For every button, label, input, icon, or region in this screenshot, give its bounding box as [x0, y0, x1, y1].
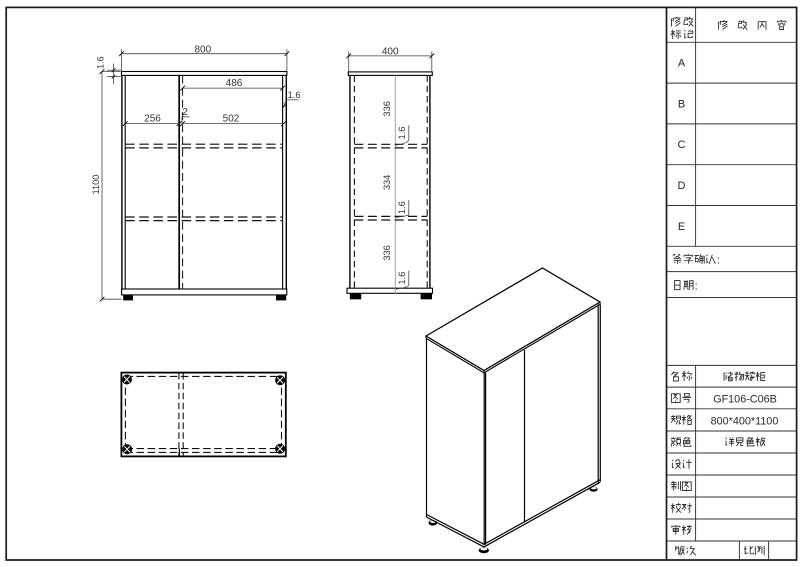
- svg-text:1.6: 1.6: [397, 201, 407, 214]
- svg-text:1.6: 1.6: [397, 127, 407, 140]
- svg-text:D: D: [678, 180, 686, 192]
- svg-text:800*400*1100: 800*400*1100: [711, 416, 779, 428]
- svg-text:E: E: [678, 221, 685, 233]
- svg-text:1100: 1100: [91, 175, 101, 195]
- svg-text::: :: [695, 281, 698, 293]
- svg-text::: :: [717, 255, 720, 267]
- svg-text:1.6: 1.6: [288, 90, 301, 100]
- svg-text:B: B: [678, 98, 685, 110]
- svg-text:800: 800: [194, 44, 211, 55]
- svg-text:A: A: [678, 58, 686, 70]
- svg-text:336: 336: [382, 245, 392, 261]
- svg-text:336: 336: [382, 101, 392, 117]
- svg-text:486: 486: [226, 78, 243, 89]
- svg-text:GF106-C06B: GF106-C06B: [713, 394, 777, 406]
- svg-text:C: C: [678, 139, 686, 151]
- svg-text:256: 256: [144, 113, 161, 124]
- svg-text:334: 334: [382, 175, 392, 191]
- svg-text:502: 502: [223, 113, 240, 124]
- svg-text:1.6: 1.6: [96, 56, 106, 69]
- svg-text:1.6: 1.6: [397, 272, 407, 285]
- svg-text:400: 400: [382, 46, 399, 57]
